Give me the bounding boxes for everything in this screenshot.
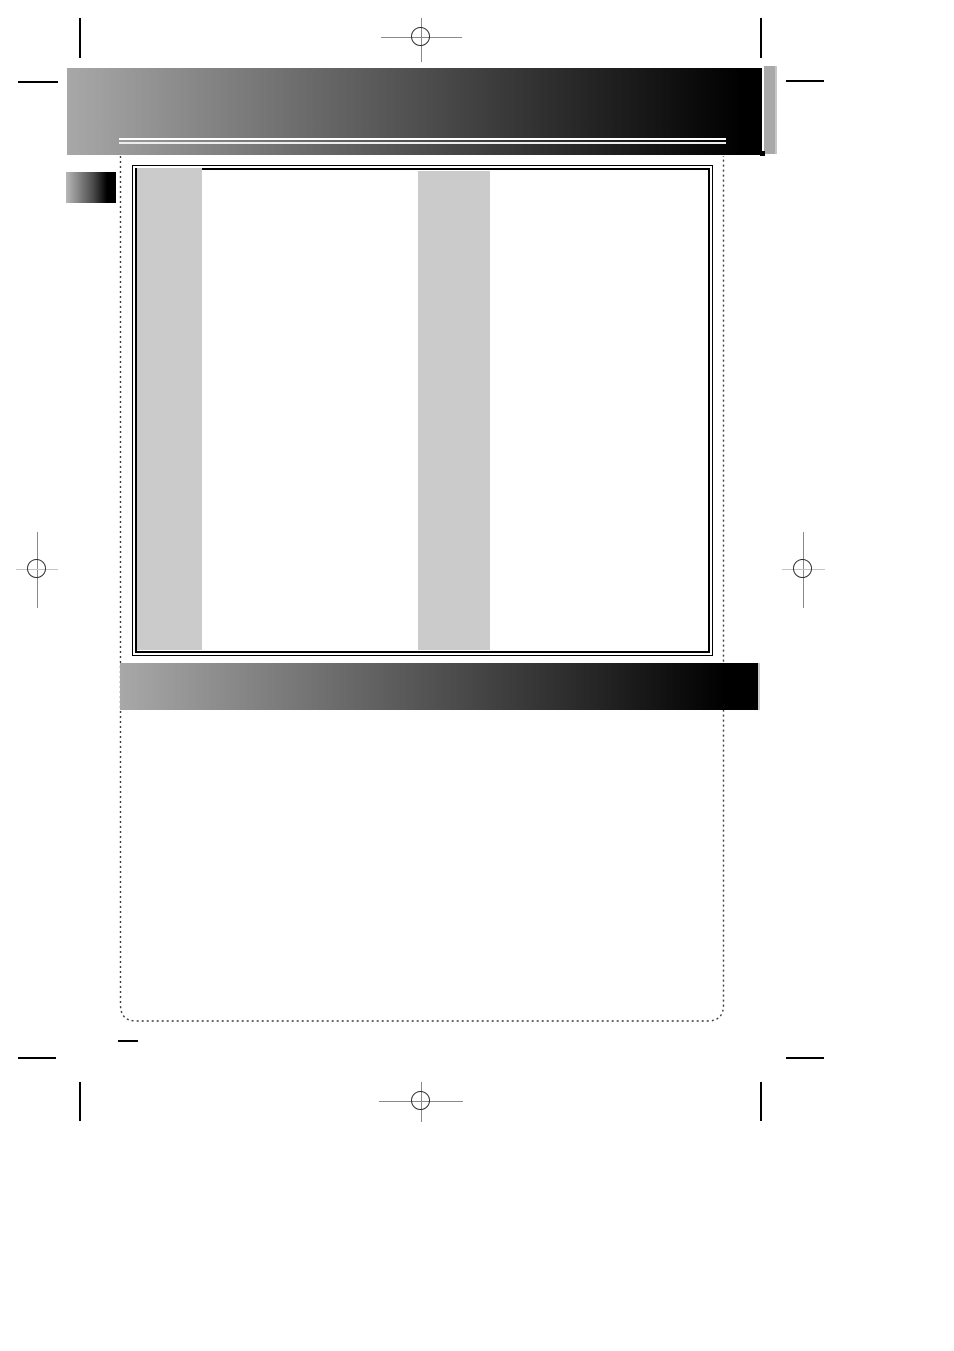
page-canvas bbox=[0, 0, 954, 1351]
registration-circle-icon bbox=[27, 559, 46, 578]
header-double-rule-top bbox=[119, 138, 726, 140]
placeholder-column-middle bbox=[418, 171, 490, 650]
registration-circle-icon bbox=[793, 559, 812, 578]
header-double-rule-bottom bbox=[119, 142, 726, 144]
crop-mark-top-right-vertical bbox=[760, 18, 762, 58]
crop-mark-bottom-right-vertical bbox=[760, 1082, 762, 1121]
header-gradient-bar bbox=[67, 68, 762, 155]
header-corner-notch bbox=[760, 151, 765, 156]
crop-mark-bottom-left-horizontal bbox=[18, 1057, 56, 1059]
crop-mark-top-left-horizontal bbox=[18, 81, 58, 83]
crop-mark-top-right-horizontal bbox=[786, 80, 824, 82]
section-gradient-bar bbox=[120, 663, 760, 710]
crop-mark-top-left-vertical bbox=[79, 18, 81, 58]
crop-mark-bottom-left-vertical bbox=[79, 1082, 81, 1121]
fold-mark-bottom-left bbox=[118, 1040, 138, 1042]
registration-circle-icon bbox=[411, 27, 430, 46]
thumb-index-block bbox=[66, 172, 116, 203]
crop-mark-bottom-right-horizontal bbox=[786, 1057, 824, 1059]
placeholder-column-left bbox=[137, 168, 202, 650]
header-side-tab bbox=[764, 66, 777, 154]
registration-circle-icon bbox=[411, 1091, 430, 1110]
